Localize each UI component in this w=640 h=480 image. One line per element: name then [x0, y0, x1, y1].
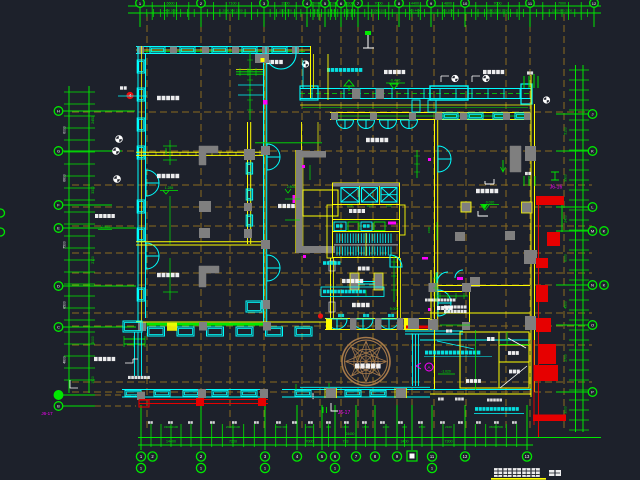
svg-text:4400 2000: 4400 2000: [163, 8, 178, 12]
svg-text:7200: 7200: [229, 440, 237, 444]
svg-text:7100: 7100: [229, 2, 237, 6]
svg-text:3000: 3000: [564, 406, 568, 414]
svg-text:2000: 2000: [383, 425, 390, 429]
svg-text:4600: 4600: [63, 356, 67, 364]
svg-text:10: 10: [463, 1, 468, 6]
svg-text:O: O: [591, 323, 594, 328]
svg-text:4800: 4800: [444, 2, 452, 6]
svg-text:6000: 6000: [564, 254, 568, 262]
svg-text:2000: 2000: [312, 2, 320, 6]
svg-text:J6-16: J6-16: [550, 185, 563, 191]
svg-text:2400: 2400: [311, 392, 315, 399]
svg-text:1500 300: 1500 300: [275, 425, 288, 429]
svg-text:1800: 1800: [342, 425, 349, 429]
svg-text:D: D: [57, 284, 60, 289]
svg-text:2100 900: 2100 900: [279, 8, 292, 12]
svg-text:1000: 1000: [386, 204, 392, 208]
svg-text:C: C: [57, 325, 60, 330]
svg-text:2000: 2000: [306, 425, 313, 429]
svg-text:J: J: [592, 112, 594, 117]
svg-text:2000 2100: 2000 2100: [226, 425, 241, 429]
svg-text:6600: 6600: [63, 174, 67, 182]
svg-text:300: 300: [326, 425, 331, 429]
svg-text:-0.400: -0.400: [390, 79, 401, 83]
svg-text:7300: 7300: [445, 440, 453, 444]
svg-text:5100: 5100: [564, 127, 568, 135]
svg-text:24400: 24400: [346, 432, 355, 436]
svg-text:4500 2500: 4500 2500: [489, 425, 504, 429]
svg-text:3300: 3300: [282, 2, 290, 6]
svg-text:9900: 9900: [564, 174, 568, 182]
svg-text:2100: 2100: [445, 425, 452, 429]
svg-text:600: 600: [313, 8, 318, 12]
svg-text:2000 3300 2100: 2000 3300 2100: [487, 8, 509, 12]
svg-text:1000: 1000: [347, 204, 353, 208]
svg-text:7500: 7500: [63, 241, 67, 249]
svg-text:B: B: [57, 404, 60, 409]
svg-text:-1.020: -1.020: [441, 370, 451, 374]
svg-text:733: 733: [343, 440, 349, 444]
svg-text:3300: 3300: [91, 186, 95, 194]
svg-text:11: 11: [430, 454, 435, 459]
svg-text:3300: 3300: [346, 2, 354, 6]
svg-text:9.000: 9.000: [390, 307, 399, 311]
svg-text:P: P: [591, 390, 594, 395]
svg-text:2100: 2100: [91, 256, 95, 264]
svg-text:14400: 14400: [166, 440, 176, 444]
svg-text:1800: 1800: [427, 226, 431, 233]
svg-text:N: N: [591, 283, 594, 288]
svg-text:K: K: [603, 283, 606, 288]
svg-text:A: A: [427, 365, 430, 370]
svg-text:4500: 4500: [564, 301, 568, 309]
svg-text:2400: 2400: [564, 215, 568, 223]
svg-text:M: M: [591, 229, 594, 234]
svg-text:300: 300: [402, 425, 407, 429]
svg-text:900: 900: [330, 8, 335, 12]
svg-text:6500: 6500: [63, 301, 67, 309]
svg-text:E: E: [57, 226, 60, 231]
svg-text:300 2000: 300 2000: [442, 8, 455, 12]
svg-text:2700: 2700: [564, 354, 568, 362]
svg-text:G: G: [57, 149, 60, 154]
svg-text:7000: 7000: [306, 440, 314, 444]
svg-text:K: K: [603, 229, 606, 234]
svg-text:12: 12: [592, 1, 597, 6]
svg-text:13: 13: [525, 454, 530, 459]
svg-text:3400: 3400: [401, 440, 409, 444]
svg-text:J6-17: J6-17: [41, 411, 53, 416]
svg-text:2450: 2450: [91, 116, 95, 124]
svg-text:900 4400: 900 4400: [409, 8, 422, 12]
svg-text:6600: 6600: [167, 2, 175, 6]
svg-text:6000: 6000: [63, 126, 67, 134]
svg-text:0.020: 0.020: [486, 201, 495, 205]
svg-text:-0.900: -0.900: [100, 225, 109, 229]
svg-text:12: 12: [463, 454, 468, 459]
svg-text:2000 300 2100: 2000 300 2100: [222, 8, 242, 12]
svg-text:2100: 2100: [329, 2, 337, 6]
svg-text:2100 600 2100: 2100 600 2100: [552, 8, 572, 12]
svg-text:J6-17: J6-17: [338, 410, 351, 416]
svg-text:4400: 4400: [411, 2, 419, 6]
svg-text:3050: 3050: [164, 147, 168, 154]
svg-text:7000: 7000: [558, 2, 566, 6]
svg-text:2100 600: 2100 600: [343, 8, 356, 12]
svg-text:1500: 1500: [362, 425, 369, 429]
svg-text:1.285: 1.285: [165, 186, 174, 190]
svg-text:7000: 7000: [375, 2, 383, 6]
svg-text:K: K: [591, 149, 594, 154]
svg-text:3300 2100: 3300 2100: [371, 8, 386, 12]
svg-text:H: H: [57, 109, 60, 114]
svg-text:3300 2100: 3300 2100: [164, 425, 179, 429]
svg-text:3000: 3000: [91, 336, 95, 344]
svg-text:1500: 1500: [91, 376, 95, 384]
svg-text:7000: 7000: [494, 2, 502, 6]
svg-text:2.800: 2.800: [287, 185, 295, 189]
svg-text:1000: 1000: [367, 204, 373, 208]
svg-text:1500: 1500: [419, 425, 426, 429]
